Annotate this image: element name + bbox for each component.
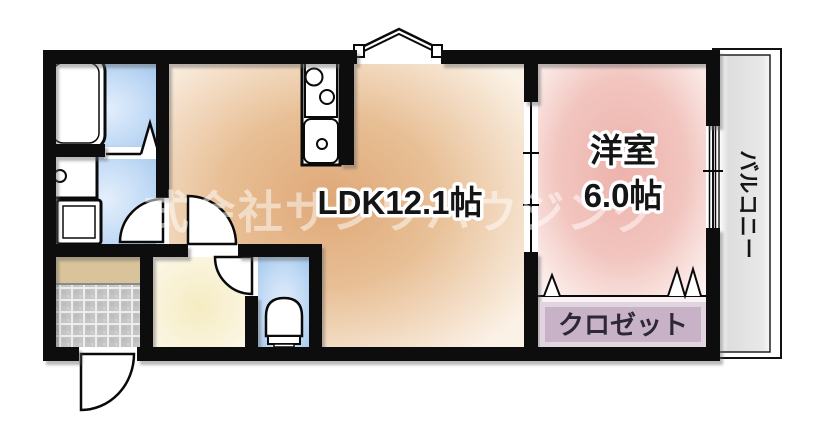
entrance-tile-floor (56, 285, 140, 347)
wall-toilet-left (245, 296, 258, 347)
wall-bottom (137, 347, 720, 361)
kitchen-counter-icon (302, 57, 340, 165)
wall-ldk-western-top (524, 50, 538, 102)
washbasin-icon (49, 155, 97, 198)
wall-kitchen-partition (340, 50, 354, 165)
wall-toilet-right (309, 244, 322, 347)
wall-bottom-left (43, 347, 79, 361)
entrance-step (56, 257, 140, 283)
ldk-door-opening (188, 244, 238, 257)
western-room-name: 洋室 (590, 132, 656, 169)
wall-bath-divider (43, 144, 105, 157)
wall-bath-ldk (156, 64, 169, 198)
entrance-step-edge (56, 283, 140, 285)
wall-top-left (43, 50, 357, 64)
wall-hall-top-left (43, 244, 188, 257)
wall-ldk-western-bottom (524, 252, 538, 361)
toilet-icon (266, 298, 302, 347)
washing-machine-icon (57, 200, 101, 244)
wall-right-lower (706, 228, 720, 361)
entry-door-icon (81, 354, 134, 410)
bay-window-icon (354, 29, 442, 64)
wall-top-right (441, 50, 720, 64)
floorplan-svg: 式会社サンワハウジング LDK12.1帖 洋室 6.0帖 クロゼット バルコニー (0, 0, 828, 438)
wall-right-upper (706, 50, 720, 126)
closet-label: クロゼット (558, 310, 688, 340)
ldk-label: LDK12.1帖 (317, 184, 482, 221)
balcony-label: バルコニー (736, 150, 759, 260)
wall-entrance-hall (140, 244, 153, 361)
western-room-size: 6.0帖 (584, 177, 663, 214)
closet-label-box: クロゼット (540, 302, 706, 347)
wall-left (43, 50, 56, 361)
floorplan-canvas: 式会社サンワハウジング LDK12.1帖 洋室 6.0帖 クロゼット バルコニー (0, 0, 828, 438)
